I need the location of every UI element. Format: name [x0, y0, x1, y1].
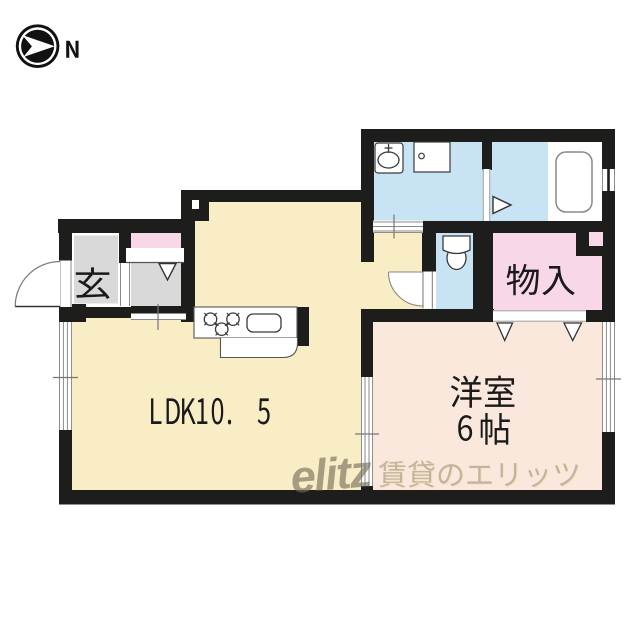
svg-text:elitz: elitz — [288, 445, 374, 503]
